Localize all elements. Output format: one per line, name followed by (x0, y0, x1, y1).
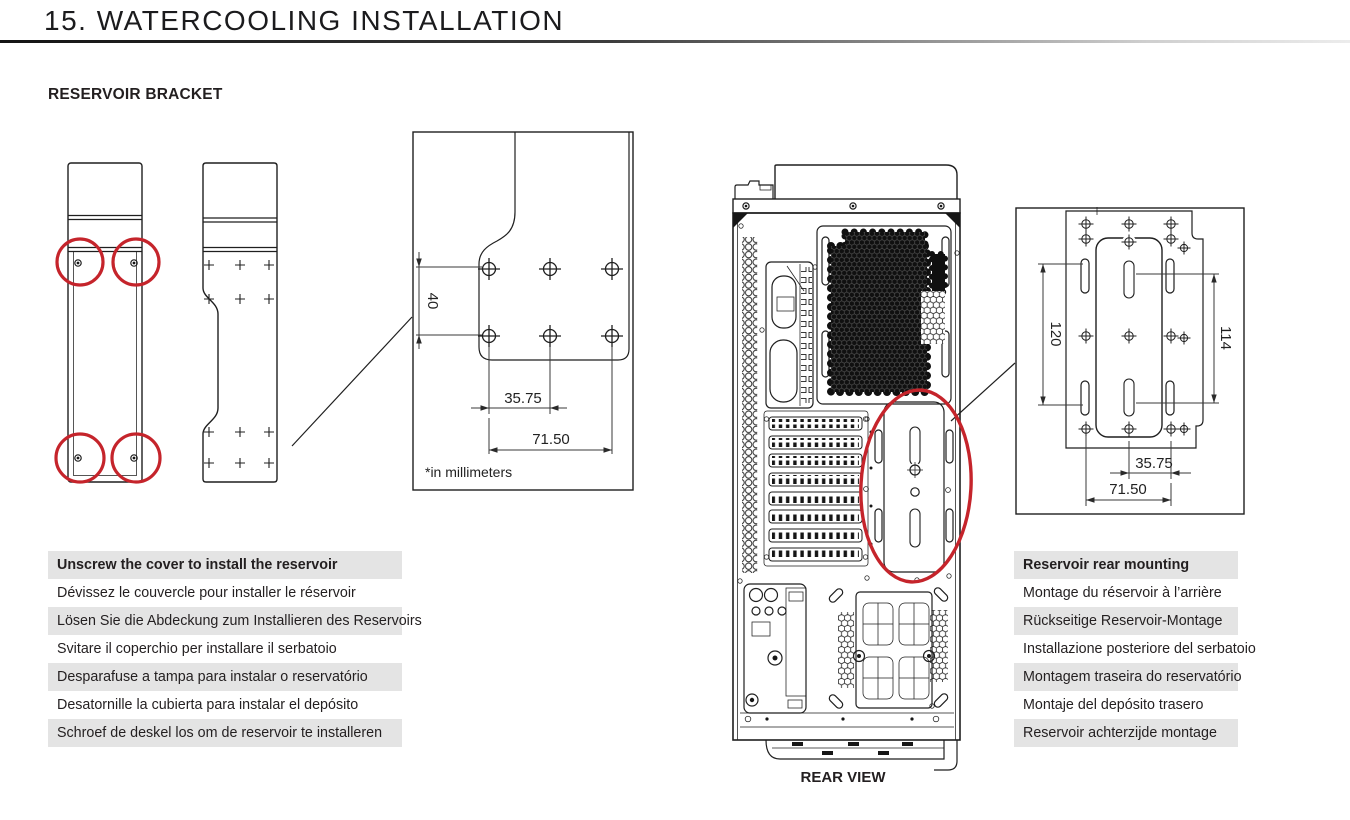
instruction-row-it: Installazione posteriore del serbatoio (1014, 635, 1238, 663)
instructions-rear-list: Reservoir rear mounting Montage du réser… (1014, 551, 1238, 747)
instruction-row-es: Desatornille la cubierta para instalar e… (48, 691, 402, 719)
instruction-text: Reservoir rear mounting (1023, 557, 1189, 573)
instruction-text: Dévissez le couvercle pour installer le … (57, 585, 356, 601)
dim-35-75-rear-label: 35.75 (1135, 455, 1173, 472)
instruction-row-en: Reservoir rear mounting (1014, 551, 1238, 579)
instruction-text: Installazione posteriore del serbatoio (1023, 641, 1256, 657)
rear-view-label: REAR VIEW (763, 769, 923, 786)
instruction-text: Desparafuse a tampa para instalar o rese… (57, 669, 368, 685)
instruction-row-fr: Dévissez le couvercle pour installer le … (48, 579, 402, 607)
instruction-text: Montagem traseira do reservatório (1023, 669, 1242, 685)
highlight-circle (56, 434, 104, 482)
highlight-circle (112, 434, 160, 482)
instruction-text: Montage du réservoir à l’arrière (1023, 585, 1222, 601)
screw-highlight-circles (56, 239, 160, 482)
instructions-cover-list: Unscrew the cover to install the reservo… (48, 551, 402, 747)
dimension-120: 120 (1038, 264, 1083, 405)
reservoir-area-highlight (856, 387, 976, 584)
reservoir-rear-vent (864, 402, 953, 572)
instruction-row-de: Rückseitige Reservoir-Montage (1014, 607, 1238, 635)
left-vent-strip (742, 237, 757, 573)
bracket-side-view (203, 163, 277, 482)
instruction-text: Schroef de deskel los om de reservoir te… (57, 725, 382, 741)
highlight-circle (57, 239, 103, 285)
instruction-row-nl: Schroef de deskel los om de reservoir te… (48, 719, 402, 747)
bracket-screws (75, 260, 137, 461)
instruction-text: Montaje del depósito trasero (1023, 697, 1203, 713)
instruction-row-nl: Reservoir achterzijde montage (1014, 719, 1238, 747)
instruction-text: Desatornille la cubierta para instalar e… (57, 697, 358, 713)
dimension-40: 40 (416, 252, 482, 349)
rear-detail-view: 120 114 35.75 71.50 (1016, 207, 1244, 514)
top-screws (743, 203, 944, 209)
mounting-holes (478, 258, 623, 347)
case-foot (766, 740, 957, 770)
instruction-text: Rückseitige Reservoir-Montage (1023, 613, 1222, 629)
dimension-35-75-rear: 35.75 (1110, 441, 1191, 479)
instruction-text: Svitare il coperchio per installare il s… (57, 641, 337, 657)
instruction-row-pt: Montagem traseira do reservatório (1014, 663, 1238, 691)
bracket-detail-view: 40 35.75 71.50 *in millimeters (413, 132, 633, 490)
units-note: *in millimeters (425, 464, 512, 480)
reservoir-cover-plate (766, 262, 813, 408)
dimension-35-75: 35.75 (471, 347, 567, 414)
instruction-row-es: Montaje del depósito trasero (1014, 691, 1238, 719)
dim-120-label: 120 (1047, 321, 1064, 346)
dim-40-label: 40 (424, 293, 441, 310)
dim-35-75-label: 35.75 (504, 390, 542, 407)
pci-slots (764, 411, 873, 566)
instruction-row-it: Svitare il coperchio per installare il s… (48, 635, 402, 663)
instruction-text: Lösen Sie die Abdeckung zum Installieren… (57, 613, 422, 629)
highlight-circle (113, 239, 159, 285)
dim-71-50-label: 71.50 (532, 431, 570, 448)
dim-114-label: 114 (1217, 326, 1234, 350)
top-fan-vent (817, 226, 951, 404)
instruction-row-de: Lösen Sie die Abdeckung zum Installieren… (48, 607, 402, 635)
instruction-row-pt: Desparafuse a tampa para instalar o rese… (48, 663, 402, 691)
instruction-row-en: Unscrew the cover to install the reservo… (48, 551, 402, 579)
instruction-text: Unscrew the cover to install the reservo… (57, 557, 337, 573)
psu-and-bottom-hardware (740, 584, 954, 727)
instruction-text: Reservoir achterzijde montage (1023, 725, 1217, 741)
dim-71-50-rear-label: 71.50 (1109, 481, 1147, 498)
leader-line (292, 317, 412, 446)
instruction-row-fr: Montage du réservoir à l’arrière (1014, 579, 1238, 607)
case-rear-view (733, 165, 960, 770)
